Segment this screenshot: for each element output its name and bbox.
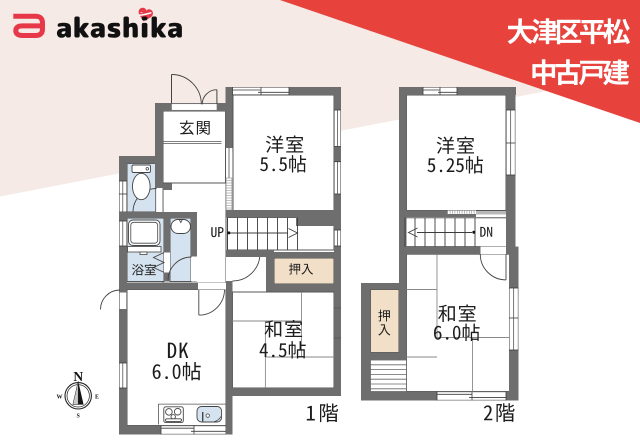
svg-text:E: E [95,394,99,400]
svg-text:W: W [57,394,63,400]
svg-text:N: N [73,369,83,384]
